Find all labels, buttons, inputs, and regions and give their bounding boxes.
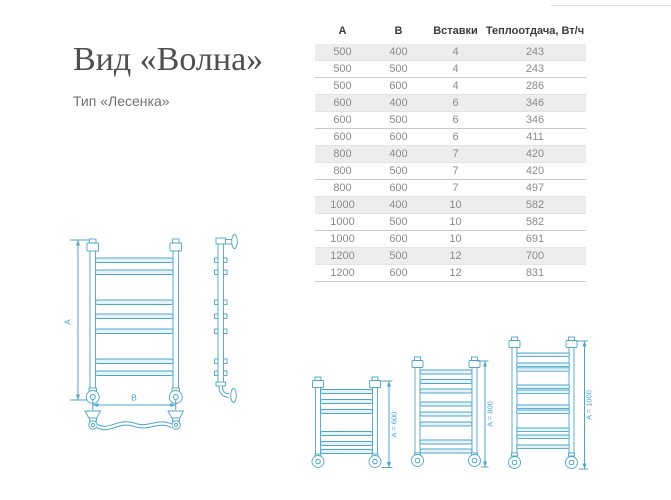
header-row: АВВставкиТеплоотдача, Вт/ч xyxy=(315,18,586,44)
table-cell: 600 xyxy=(370,129,427,146)
table-row: 8004007420 xyxy=(315,146,586,163)
ladder xyxy=(412,357,481,467)
table-cell: 831 xyxy=(484,265,586,282)
table-cell: 10 xyxy=(427,214,484,231)
table-cell: 497 xyxy=(484,180,586,197)
table-row: 100050010582 xyxy=(315,214,586,231)
table-cell: 4 xyxy=(427,78,484,95)
column-header: В xyxy=(370,18,427,44)
table-row: 100060010691 xyxy=(315,231,586,248)
table-cell: 1000 xyxy=(315,231,370,248)
table-cell: 12 xyxy=(427,265,484,282)
table-cell: 600 xyxy=(370,265,427,282)
table-cell: 400 xyxy=(370,44,427,61)
side-view xyxy=(215,235,238,403)
table-row: 6005006346 xyxy=(315,112,586,129)
table-cell: 243 xyxy=(484,44,586,61)
hex-nut-icon xyxy=(87,239,182,251)
table-row: 6004006346 xyxy=(315,95,586,112)
table-cell: 500 xyxy=(370,163,427,180)
table-cell: 500 xyxy=(370,61,427,78)
table-row: 120050012700 xyxy=(315,248,586,265)
dimension-a: А xyxy=(63,240,92,400)
variant-1000-label: A = 1000 xyxy=(585,390,594,420)
page-subtitle: Тип «Лесенка» xyxy=(73,93,263,109)
dim-b-label: В xyxy=(131,393,137,403)
table-cell: 4 xyxy=(427,61,484,78)
front-view-drawing: А xyxy=(58,230,258,445)
table-cell: 411 xyxy=(484,129,586,146)
table-cell: 6 xyxy=(427,129,484,146)
table-cell: 346 xyxy=(484,112,586,129)
table-cell: 1200 xyxy=(315,265,370,282)
table-row: 100040010582 xyxy=(315,197,586,214)
table-cell: 10 xyxy=(427,197,484,214)
table-row: 5004004243 xyxy=(315,44,586,61)
variant-600-label: A = 600 xyxy=(390,412,399,438)
table-cell: 420 xyxy=(484,146,586,163)
column-header: Вставки xyxy=(427,18,484,44)
table-cell: 600 xyxy=(370,78,427,95)
page: Вид «Волна» Тип «Лесенка» АВВставкиТепло… xyxy=(0,0,671,500)
variant-600-drawing: A = 600 xyxy=(303,376,403,476)
table-row: 8006007497 xyxy=(315,180,586,197)
table-cell: 346 xyxy=(484,95,586,112)
spec-table: АВВставкиТеплоотдача, Вт/ч 5004004243500… xyxy=(315,18,586,282)
table-row: 120060012831 xyxy=(315,265,586,282)
table-cell: 800 xyxy=(315,180,370,197)
ladder xyxy=(312,377,381,468)
dimension: A = 1000 xyxy=(576,341,594,469)
dimension: A = 800 xyxy=(477,361,495,467)
table-cell: 286 xyxy=(484,78,586,95)
table-cell: 243 xyxy=(484,61,586,78)
table-row: 5005004243 xyxy=(315,61,586,78)
title-block: Вид «Волна» Тип «Лесенка» xyxy=(73,41,263,109)
front-frame xyxy=(86,239,182,404)
table-cell: 1200 xyxy=(315,248,370,265)
table-cell: 7 xyxy=(427,163,484,180)
table-cell: 582 xyxy=(484,214,586,231)
spec-table-header: АВВставкиТеплоотдача, Вт/ч xyxy=(315,18,586,44)
rungs xyxy=(96,258,174,376)
table-cell: 400 xyxy=(370,197,427,214)
left-post xyxy=(90,251,96,388)
table-cell: 6 xyxy=(427,95,484,112)
column-header: А xyxy=(315,18,370,44)
spec-table-body: 5004004243500500424350060042866004006346… xyxy=(315,44,586,282)
dimension-b: В xyxy=(93,393,176,411)
wave-rung-view xyxy=(85,411,184,429)
table-cell: 400 xyxy=(370,95,427,112)
table-cell: 600 xyxy=(370,180,427,197)
table-cell: 10 xyxy=(427,231,484,248)
table-cell: 500 xyxy=(370,248,427,265)
table-cell: 800 xyxy=(315,146,370,163)
variant-800-drawing: A = 800 xyxy=(403,356,503,476)
table-cell: 500 xyxy=(315,44,370,61)
table-cell: 600 xyxy=(315,129,370,146)
table-cell: 700 xyxy=(484,248,586,265)
page-title: Вид «Волна» xyxy=(73,41,263,78)
table-cell: 500 xyxy=(370,214,427,231)
dimension: A = 600 xyxy=(379,381,399,468)
table-cell: 12 xyxy=(427,248,484,265)
table-row: 5006004286 xyxy=(315,78,586,95)
table-cell: 7 xyxy=(427,180,484,197)
table-cell: 1000 xyxy=(315,214,370,231)
table-cell: 600 xyxy=(315,95,370,112)
top-divider xyxy=(551,5,671,6)
table-cell: 4 xyxy=(427,44,484,61)
variant-800-label: A = 800 xyxy=(486,401,495,427)
table-cell: 1000 xyxy=(315,197,370,214)
table-row: 6006006411 xyxy=(315,129,586,146)
table-cell: 800 xyxy=(315,163,370,180)
right-post xyxy=(173,251,179,388)
table-cell: 500 xyxy=(315,78,370,95)
table-cell: 600 xyxy=(315,112,370,129)
table-cell: 6 xyxy=(427,112,484,129)
column-header: Теплоотдача, Вт/ч xyxy=(484,18,586,44)
table-cell: 400 xyxy=(370,146,427,163)
table-cell: 420 xyxy=(484,163,586,180)
table-cell: 691 xyxy=(484,231,586,248)
table-cell: 500 xyxy=(315,61,370,78)
table-cell: 7 xyxy=(427,146,484,163)
ladder xyxy=(509,337,578,469)
table-row: 8005007420 xyxy=(315,163,586,180)
dim-a-label: А xyxy=(63,319,73,325)
table-cell: 582 xyxy=(484,197,586,214)
table-cell: 600 xyxy=(370,231,427,248)
table-cell: 500 xyxy=(370,112,427,129)
variant-1000-drawing: A = 1000 xyxy=(500,336,600,476)
